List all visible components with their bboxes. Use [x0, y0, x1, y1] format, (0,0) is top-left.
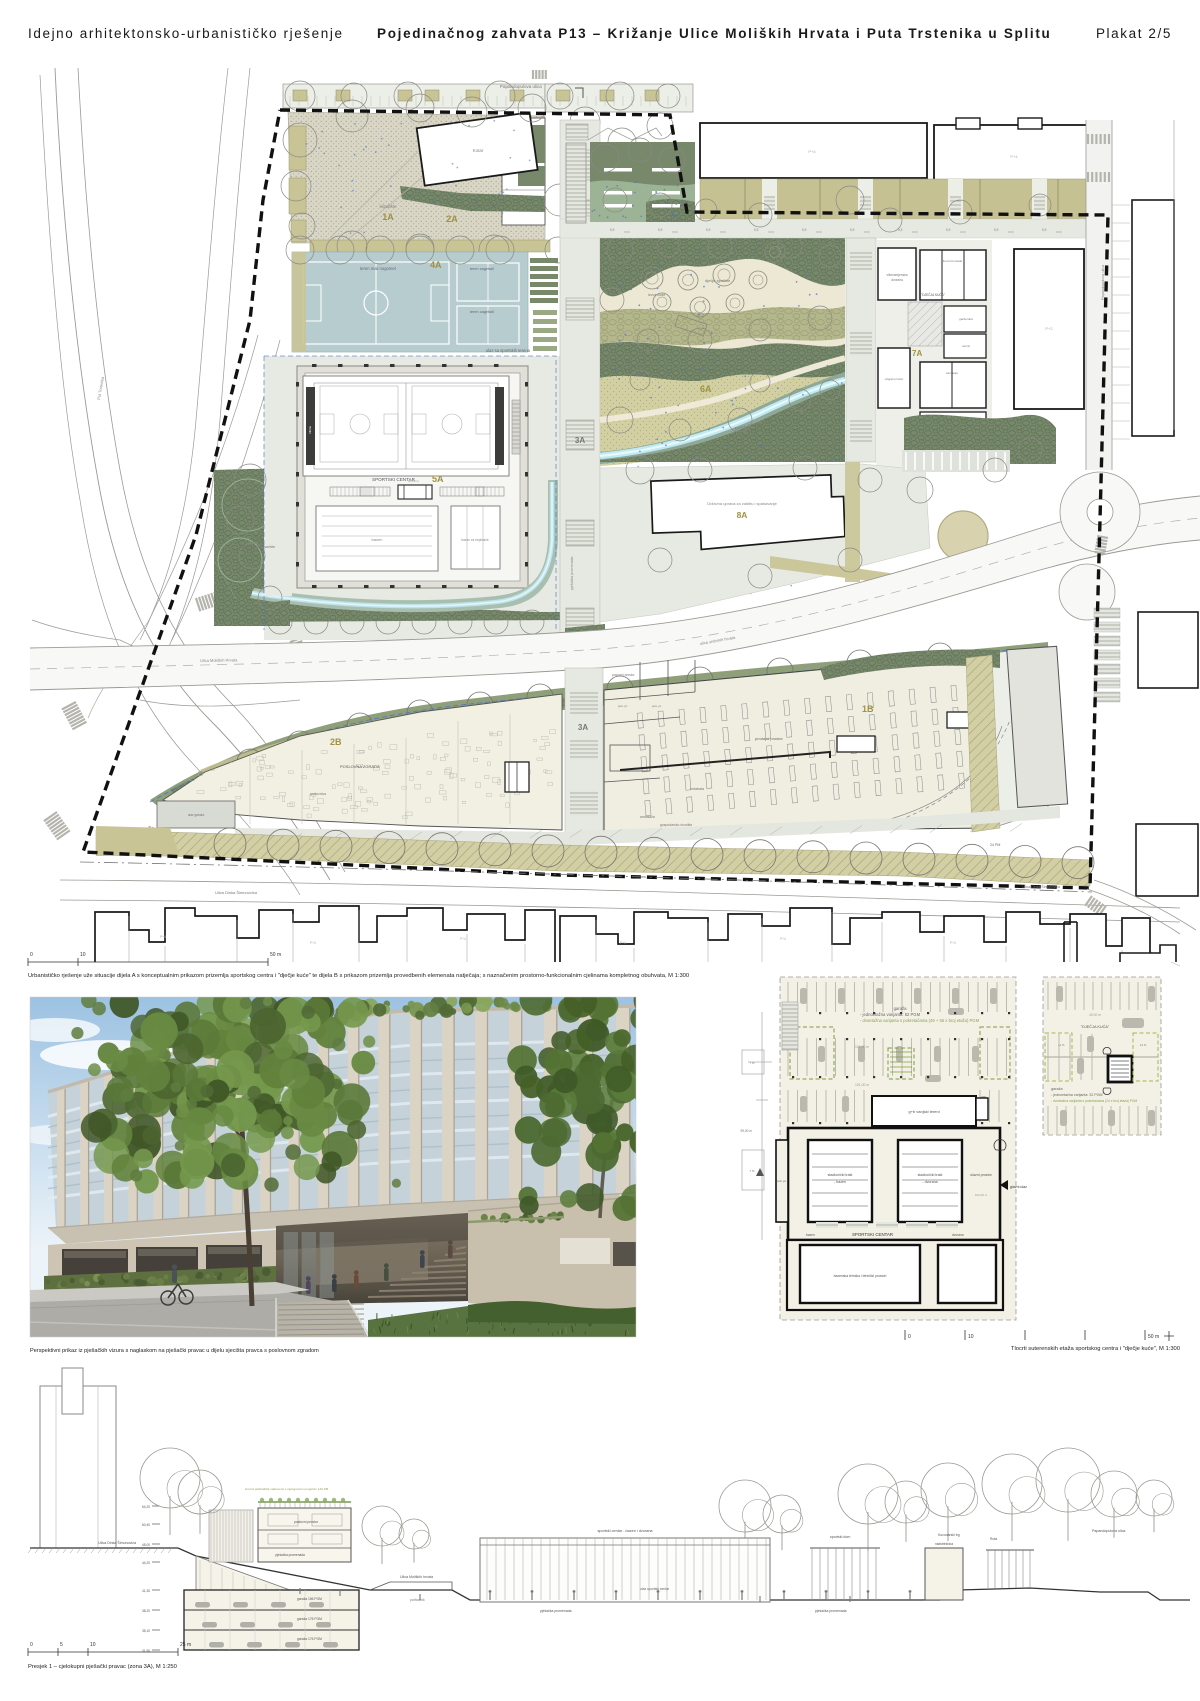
svg-text:103,00 m: 103,00 m	[975, 1193, 988, 1197]
svg-text:pješačka promenada: pješačka promenada	[275, 1553, 305, 1557]
svg-text:Tlocrti suterenskih etaža spor: Tlocrti suterenskih etaža sportskog cent…	[1011, 1346, 1180, 1352]
svg-text:nadstrešnica: nadstrešnica	[935, 1542, 953, 1546]
svg-text:5: 5	[60, 1642, 63, 1648]
svg-text:garaža: garaža	[894, 1006, 907, 1011]
svg-text:46,00 m: 46,00 m	[408, 479, 419, 483]
svg-text:tribine: tribine	[308, 426, 312, 435]
svg-text:teren cageball: teren cageball	[470, 310, 494, 314]
svg-text:pos. pr.: pos. pr.	[618, 704, 628, 708]
svg-text:3A: 3A	[575, 436, 585, 445]
svg-text:dvorana: dvorana	[952, 1233, 964, 1237]
svg-text:sportski dom: sportski dom	[830, 1535, 850, 1539]
svg-text:P+4: P+4	[620, 941, 626, 945]
svg-text:3A: 3A	[578, 723, 588, 732]
svg-text:odgojni prostor: odgojni prostor	[885, 377, 904, 381]
svg-text:pješačka promenada: pješačka promenada	[570, 557, 574, 590]
svg-text:7A: 7A	[912, 349, 922, 358]
svg-text:35,10: 35,10	[142, 1629, 150, 1633]
svg-text:park: park	[636, 373, 643, 377]
svg-text:5,5: 5,5	[802, 228, 807, 232]
svg-text:poslovni prostor: poslovni prostor	[294, 1520, 319, 1524]
svg-text:garaža 156 PGM: garaža 156 PGM	[297, 1597, 322, 1601]
svg-text:Državna uprava za zaštitu i sp: Državna uprava za zaštitu i spašavanje	[707, 501, 777, 506]
svg-text:P+4: P+4	[780, 937, 786, 941]
svg-text:4A: 4A	[430, 260, 442, 270]
svg-text:5,5: 5,5	[610, 228, 615, 232]
svg-text:garderoba: garderoba	[959, 317, 973, 321]
svg-text:101,00 m: 101,00 m	[855, 1083, 869, 1087]
svg-text:bazen: bazen	[806, 1233, 815, 1237]
svg-text:- jednoetažna varijanta: 52 PG: - jednoetažna varijanta: 52 PGM	[860, 1012, 921, 1017]
svg-text:5A: 5A	[432, 474, 444, 484]
svg-text:+1 %: +1 %	[1058, 1043, 1065, 1047]
svg-text:glavni ulaz: glavni ulaz	[1010, 1185, 1027, 1189]
svg-text:višenamjenska: višenamjenska	[886, 273, 907, 277]
svg-text:sportski centar - bazen i dvor: sportski centar - bazen i dvorana	[597, 1529, 653, 1533]
svg-text:g+b vanjski tereni: g+b vanjski tereni	[908, 1109, 939, 1114]
svg-text:pješačka promenada: pješačka promenada	[815, 1609, 847, 1613]
svg-text:38,20: 38,20	[142, 1609, 150, 1613]
svg-text:41,30: 41,30	[142, 1589, 150, 1593]
svg-text:5,5: 5,5	[946, 228, 951, 232]
svg-text:izvor vode: izvor vode	[648, 293, 665, 297]
svg-text:ulaz sa sportskih terena: ulaz sa sportskih terena	[486, 348, 531, 353]
svg-text:Papandopulova ulica: Papandopulova ulica	[500, 84, 542, 89]
svg-text:60,40: 60,40	[142, 1523, 150, 1527]
svg-text:Papandopulova ulica: Papandopulova ulica	[1092, 1529, 1125, 1533]
svg-text:- bazen: - bazen	[834, 1180, 846, 1184]
svg-text:10: 10	[80, 952, 86, 958]
svg-text:bazen za neplivače: bazen za neplivače	[461, 538, 489, 542]
svg-text:klizalište: klizalište	[379, 204, 397, 209]
svg-text:gospodarsko dvorište: gospodarsko dvorište	[660, 823, 692, 827]
svg-text:teren cageball: teren cageball	[470, 267, 494, 271]
svg-text:dvorana: dvorana	[891, 278, 903, 282]
svg-text:P+4: P+4	[808, 149, 816, 154]
svg-text:Urbanističko rješenje uže situ: Urbanističko rješenje uže situacije dije…	[28, 973, 689, 979]
svg-text:pos. pr.: pos. pr.	[652, 704, 662, 708]
svg-text:entabata: entabata	[690, 787, 704, 791]
svg-text:Ulica Moliških Hrvata: Ulica Moliških Hrvata	[200, 657, 238, 663]
svg-text:14 %: 14 %	[1140, 1043, 1147, 1047]
svg-text:Idejno arhitektonsko-urbanisti: Idejno arhitektonsko-urbanističko rješen…	[28, 26, 344, 41]
svg-text:garaža: garaža	[1051, 1087, 1063, 1091]
svg-text:1B: 1B	[862, 704, 874, 714]
svg-text:krovna parkirališta nadsvreno: krovna parkirališta nadsvreno s cjelogra…	[245, 1487, 329, 1491]
svg-text:bazen: bazen	[372, 537, 383, 542]
svg-text:25 m: 25 m	[180, 1642, 191, 1648]
svg-text:- dvoetažna varijanta s pokret: - dvoetažna varijanta s pokretačama (24 …	[1051, 1099, 1138, 1103]
svg-text:5,5: 5,5	[994, 228, 999, 232]
svg-text:poslovni prostor: poslovni prostor	[612, 673, 635, 677]
svg-text:2B: 2B	[330, 737, 342, 747]
svg-text:pješačka promenada: pješačka promenada	[540, 1609, 572, 1613]
svg-text:8A: 8A	[737, 510, 748, 520]
svg-text:teh. pr.: teh. pr.	[777, 1179, 786, 1183]
svg-text:servis: servis	[962, 344, 970, 348]
svg-text:7 %: 7 %	[749, 1061, 755, 1065]
svg-text:Ulica Dinka Šimunovića: Ulica Dinka Šimunovića	[215, 890, 258, 895]
svg-text:64,20: 64,20	[142, 1505, 150, 1509]
svg-text:"DJEČJA KUĆA": "DJEČJA KUĆA"	[921, 292, 945, 297]
svg-text:ulazni prostor: ulazni prostor	[970, 1173, 992, 1177]
svg-text:0: 0	[30, 1642, 33, 1648]
svg-text:POSLOVNA ZGRADA: POSLOVNA ZGRADA	[340, 764, 380, 769]
svg-text:izvor vode: izvor vode	[628, 365, 645, 369]
svg-text:Perspektivni prikaz iz pješačk: Perspektivni prikaz iz pješačkih vizura …	[30, 1348, 319, 1354]
svg-text:Presjek 1 – cjelokupni pješačk: Presjek 1 – cjelokupni pješački pravac (…	[28, 1664, 177, 1670]
svg-text:garaža 176 PGM: garaža 176 PGM	[297, 1617, 322, 1621]
svg-text:50 m: 50 m	[270, 952, 281, 958]
svg-text:50 m: 50 m	[1148, 1334, 1159, 1340]
svg-text:gospodarsko dvorište: gospodarsko dvorište	[241, 545, 275, 549]
svg-text:P+2: P+2	[1045, 326, 1053, 331]
svg-text:40,00 m: 40,00 m	[1089, 1013, 1101, 1017]
svg-text:10: 10	[90, 1642, 96, 1648]
svg-text:ambalaža: ambalaža	[640, 815, 655, 819]
svg-text:Ulica Dinka Šimunovića: Ulica Dinka Šimunovića	[1022, 884, 1060, 889]
svg-text:44,20: 44,20	[142, 1561, 150, 1565]
svg-text:7 %: 7 %	[749, 1169, 755, 1173]
svg-text:ulaz sportski centar: ulaz sportski centar	[640, 1587, 670, 1591]
svg-text:5,5: 5,5	[706, 228, 711, 232]
svg-text:stadionički trakt: stadionički trakt	[828, 1173, 853, 1177]
svg-text:10: 10	[968, 1334, 974, 1340]
svg-text:bazenska tehnika i tehnički pr: bazenska tehnika i tehnički prostori	[834, 1274, 887, 1278]
svg-text:5,5: 5,5	[850, 228, 855, 232]
svg-text:0: 0	[30, 952, 33, 958]
svg-text:sanitarije: sanitarije	[946, 371, 958, 375]
svg-text:5,5: 5,5	[754, 228, 759, 232]
svg-text:Plakat 2/5: Plakat 2/5	[1096, 26, 1172, 41]
svg-text:stadionički trakt: stadionički trakt	[918, 1173, 943, 1177]
svg-text:Kotar: Kotar	[473, 148, 484, 153]
svg-text:Pojedinačnog zahvata P13 – Kri: Pojedinačnog zahvata P13 – Križanje Ulic…	[377, 26, 1052, 41]
svg-text:Rota: Rota	[990, 1537, 997, 1541]
svg-text:- dvoetažna varijanta s pokret: - dvoetažna varijanta s pokretačama (49 …	[860, 1018, 980, 1023]
svg-text:ulaz garaža: ulaz garaža	[188, 813, 205, 817]
svg-text:"DJEČJA KUĆA": "DJEČJA KUĆA"	[1081, 1024, 1110, 1029]
svg-text:1A: 1A	[382, 212, 394, 222]
svg-text:teren mali nogomet: teren mali nogomet	[360, 266, 397, 271]
svg-text:dječje igralište: dječje igralište	[705, 278, 731, 283]
svg-text:dnevni boravak: dnevni boravak	[942, 259, 963, 263]
svg-text:99,00 m: 99,00 m	[740, 1129, 752, 1133]
svg-text:- jednoetažna varijanta: 32 PG: - jednoetažna varijanta: 32 PGM	[1051, 1093, 1103, 1097]
svg-text:P+4: P+4	[950, 941, 956, 945]
svg-text:0: 0	[908, 1334, 911, 1340]
svg-text:P+4: P+4	[460, 937, 466, 941]
svg-text:5,5: 5,5	[1042, 228, 1047, 232]
svg-text:45,00: 45,00	[142, 1543, 150, 1547]
svg-text:Ulica Dinka Šimunovića: Ulica Dinka Šimunovića	[98, 1540, 136, 1545]
svg-text:2A: 2A	[446, 214, 458, 224]
svg-text:- dvorana: - dvorana	[922, 1180, 937, 1184]
svg-text:5,5: 5,5	[658, 228, 663, 232]
svg-text:Papandopulova ulica: Papandopulova ulica	[1101, 264, 1105, 300]
svg-text:prodajni prostor: prodajni prostor	[755, 736, 783, 741]
svg-text:poslovnica: poslovnica	[310, 792, 326, 796]
svg-text:pothodnik: pothodnik	[410, 1598, 425, 1602]
svg-text:P+4: P+4	[160, 935, 166, 939]
svg-text:Kocunarski trg: Kocunarski trg	[938, 1533, 960, 1537]
svg-text:P+4: P+4	[1010, 154, 1018, 159]
svg-text:101,00 m: 101,00 m	[855, 1045, 869, 1049]
svg-text:SPORTSKI CENTAR: SPORTSKI CENTAR	[852, 1232, 893, 1237]
svg-text:24 PM: 24 PM	[990, 843, 1000, 847]
svg-text:garaža 176 PGM: garaža 176 PGM	[297, 1637, 322, 1641]
svg-text:P+4: P+4	[310, 941, 316, 945]
svg-text:6A: 6A	[700, 384, 712, 394]
svg-text:Ulica Moliških hrvata: Ulica Moliških hrvata	[400, 1575, 433, 1579]
